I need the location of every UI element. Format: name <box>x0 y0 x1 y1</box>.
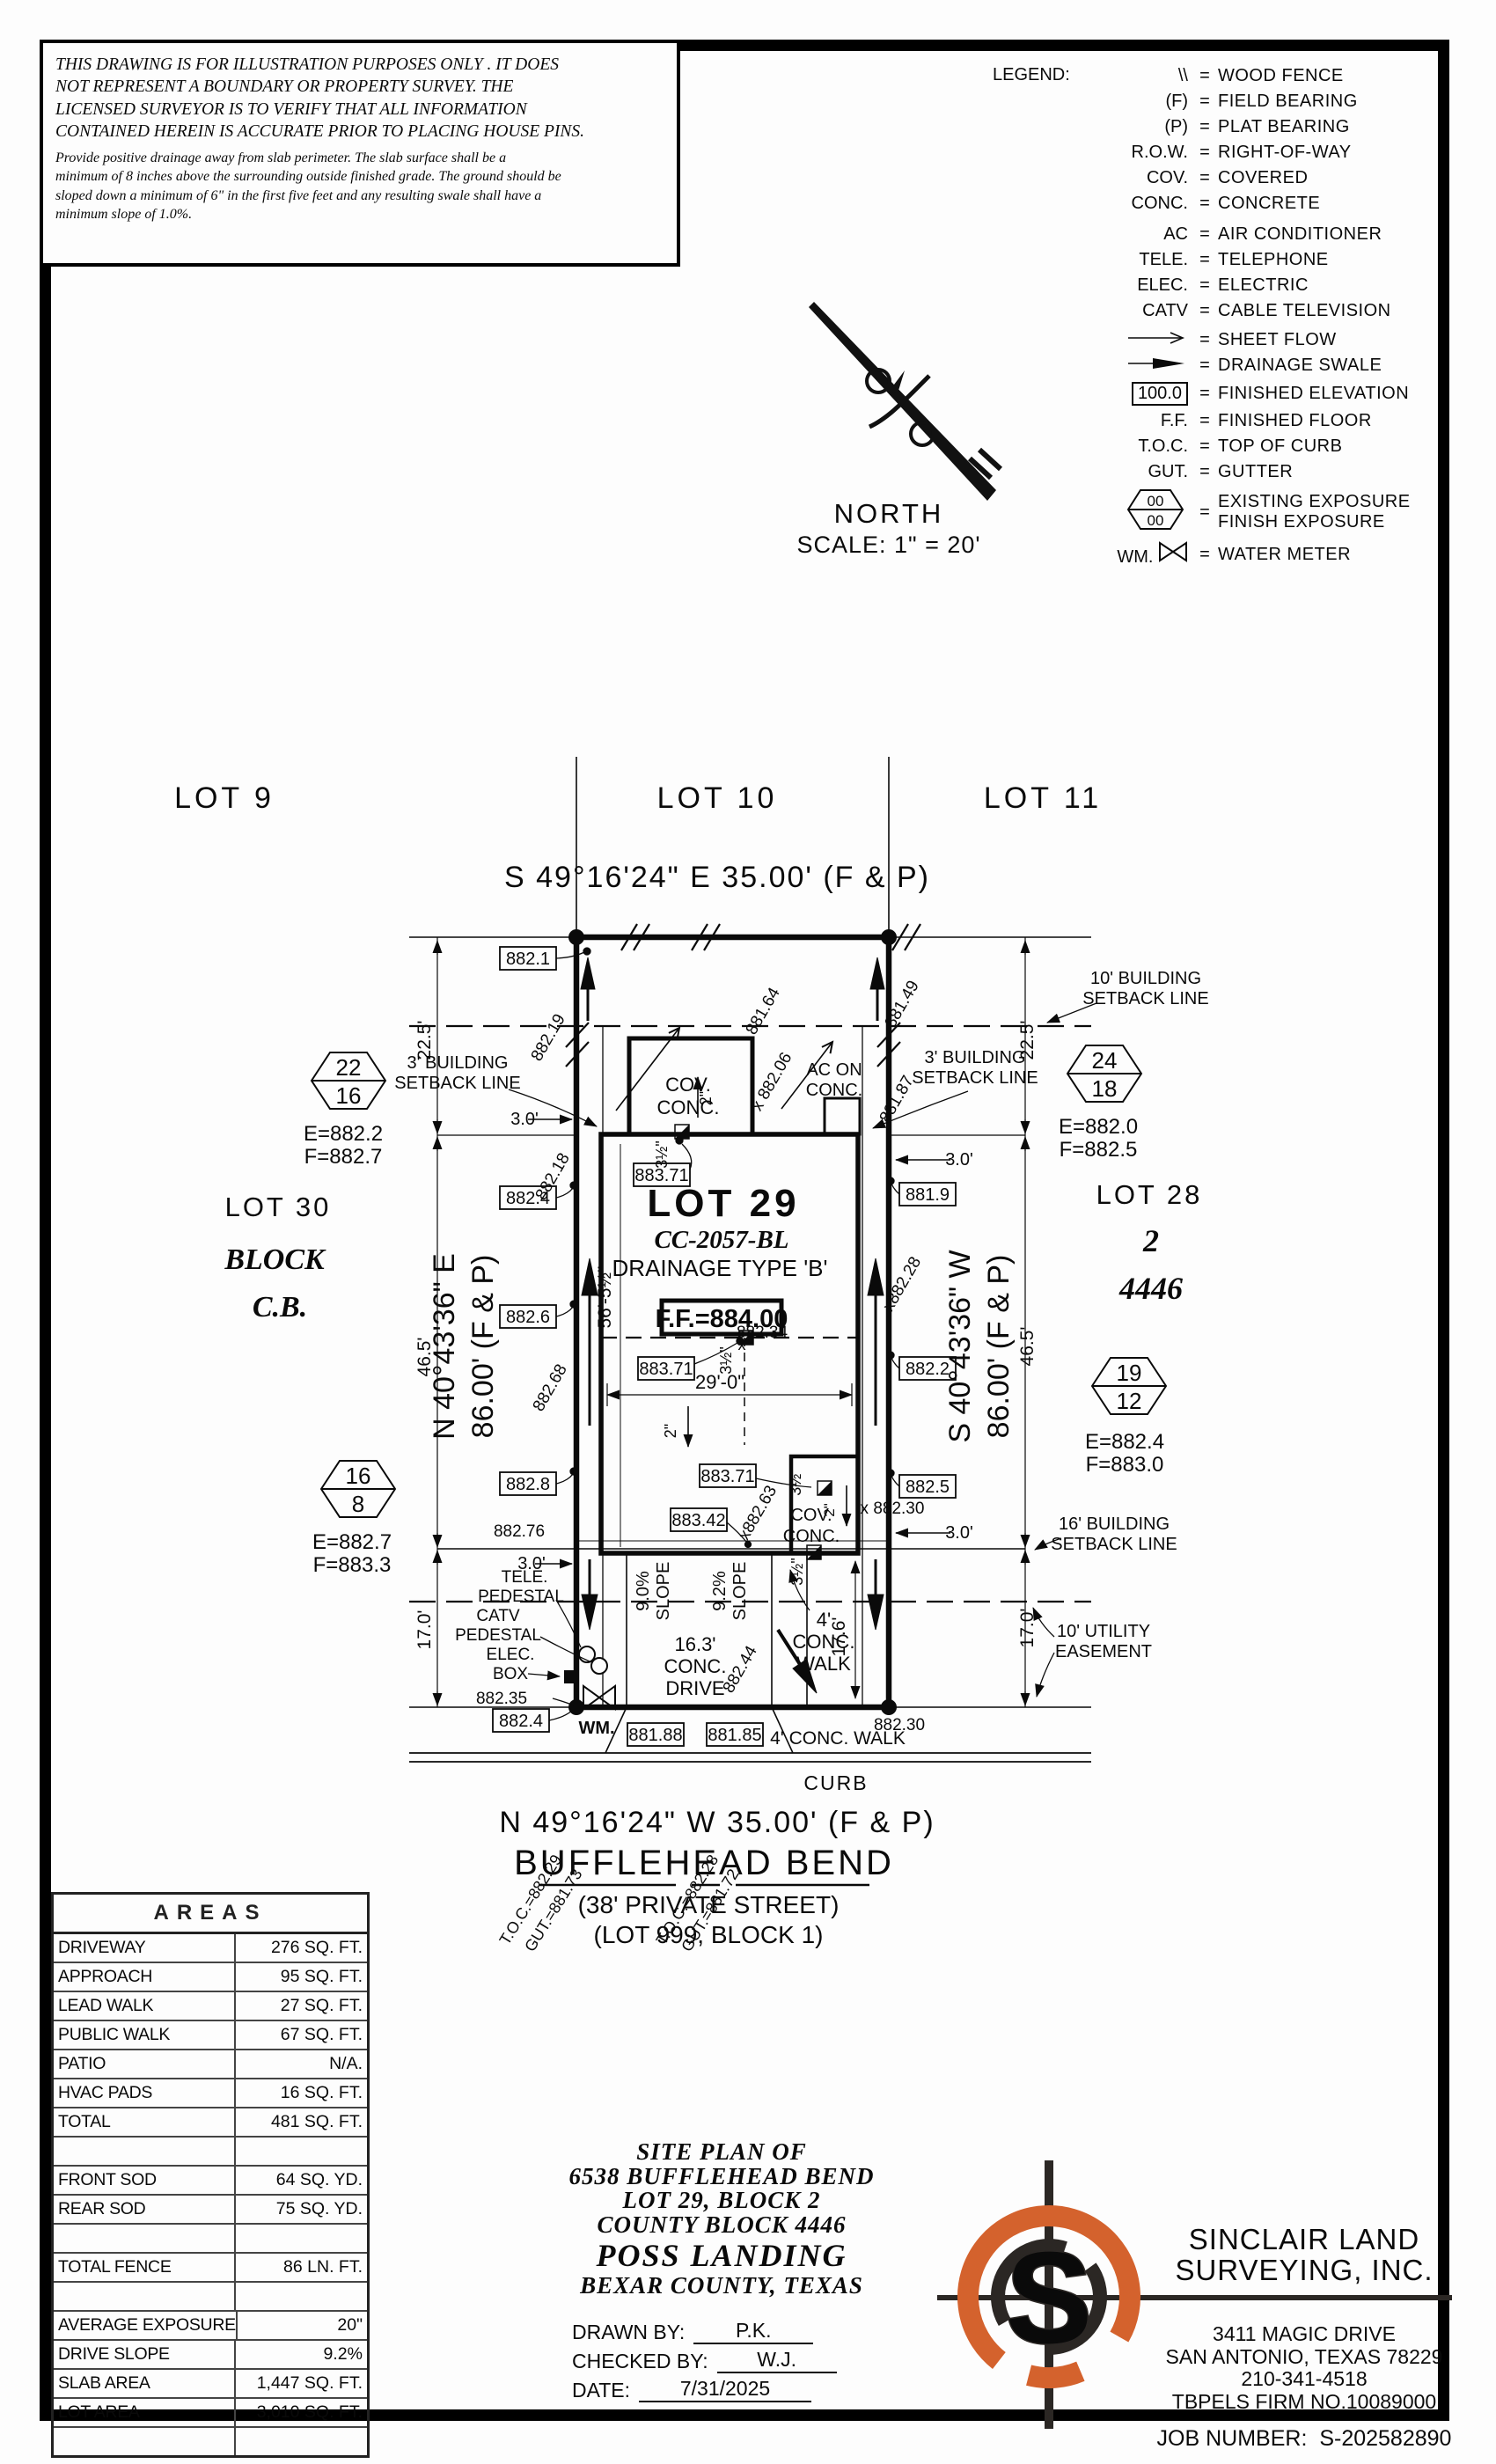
row-label: DRIVE SLOPE <box>54 2341 236 2368</box>
label-setback10-2: SETBACK LINE <box>1082 989 1208 1008</box>
title-line: 6538 BUFFLEHEAD BEND <box>475 2165 968 2189</box>
label-882-76: 882.76 <box>494 1522 545 1541</box>
label-walk-2: CONC. <box>793 1631 855 1653</box>
label-cc-number: CC-2057-BL <box>654 1226 788 1254</box>
equals: = <box>1192 275 1218 296</box>
north-arrow <box>766 286 1030 506</box>
job-number-label: JOB NUMBER: <box>1157 2426 1308 2451</box>
bearing-right-1: S 40°43'36" W <box>943 1250 977 1442</box>
label-882-5: 882.5 <box>906 1478 950 1497</box>
conc-abbr: CONC. <box>1089 194 1192 214</box>
table-row: PUBLIC WALK67 SQ. FT. <box>54 2021 367 2050</box>
utility-symbols <box>564 1646 615 1709</box>
date-value: 7/31/2025 <box>639 2377 811 2402</box>
catv-abbr: CATV <box>1089 301 1192 321</box>
note-line: Provide positive drainage away from slab… <box>55 149 664 167</box>
exposure-bottom: 00 <box>1148 512 1164 529</box>
equals: = <box>1192 224 1218 245</box>
equals: = <box>1192 462 1218 482</box>
site-plan-drawing: LOT 9 LOT 10 LOT 11 S 49°16'24" E 35.00'… <box>0 730 1496 1962</box>
legend: LEGEND: \\=WOOD FENCE (F)=FIELD BEARING … <box>1089 63 1448 569</box>
label-882-1: 882.1 <box>506 950 550 969</box>
label-2in-porch: 2" <box>697 1091 715 1105</box>
equals: = <box>1192 66 1218 86</box>
exposure-top: 00 <box>1148 493 1164 510</box>
hex24-bottom: 18 <box>1092 1075 1118 1102</box>
hex16-top: 16 <box>346 1463 371 1489</box>
label-lot10: LOT 10 <box>657 781 778 815</box>
gutter-abbr: GUT. <box>1089 462 1192 482</box>
row-value: 27 SQ. FT. <box>236 1992 367 2020</box>
table-row: PATION/A. <box>54 2050 367 2079</box>
label-x882-18: 882.18 <box>532 1150 574 1204</box>
row-value: 67 SQ. FT. <box>236 2021 367 2049</box>
label-cb: C.B. <box>253 1291 307 1324</box>
row-value: 1,447 SQ. FT. <box>236 2370 367 2397</box>
table-row-blank <box>54 2138 367 2167</box>
disclaimer-line: LICENSED SURVEYOR IS TO VERIFY THAT ALL … <box>55 99 664 121</box>
company-phone: 210-341-4518 <box>1151 2368 1457 2391</box>
logo-letter: S <box>1006 2226 1093 2371</box>
label-block: BLOCK <box>224 1243 326 1276</box>
wm-abbr: WM. <box>1117 547 1153 567</box>
label-bearing-bottom: N 49°16'24" W 35.00' (F & P) <box>499 1806 935 1839</box>
bearing-left-1: N 40°43'36" E <box>428 1253 461 1440</box>
row-label: DRIVEWAY <box>54 1934 236 1962</box>
disclaimer-line: THIS DRAWING IS FOR ILLUSTRATION PURPOSE… <box>55 54 664 76</box>
dim-17-0-right: 17.0' <box>1017 1609 1038 1648</box>
label-slope-word1: SLOPE <box>654 1562 673 1621</box>
legend-desc: ELECTRIC <box>1218 275 1448 296</box>
table-row: TOTAL481 SQ. FT. <box>54 2108 367 2138</box>
water-meter-icon: WM. <box>1089 541 1192 568</box>
legend-desc: FIELD BEARING <box>1218 92 1448 112</box>
label-slope-92: 9.2% <box>710 1571 730 1611</box>
label-tele-1: TELE. <box>502 1568 548 1587</box>
company-firm: TBPELS FIRM NO.10089000 <box>1151 2391 1457 2414</box>
row-abbr: R.O.W. <box>1089 143 1192 163</box>
row-label: SLAB AREA <box>54 2370 236 2397</box>
label-drainage-type: DRAINAGE TYPE 'B' <box>612 1255 828 1281</box>
legend-desc: TOP OF CURB <box>1218 436 1448 457</box>
dim-3-0-rt: 3.0' <box>945 1150 973 1170</box>
legend-desc: SHEET FLOW <box>1218 330 1448 350</box>
row-label: REAR SOD <box>54 2196 236 2223</box>
row-value: 16 SQ. FT. <box>236 2079 367 2107</box>
company-name-2: SURVEYING, INC. <box>1151 2255 1457 2286</box>
table-row: APPROACH95 SQ. FT. <box>54 1963 367 1992</box>
table-row: DRIVEWAY276 SQ. FT. <box>54 1934 367 1963</box>
label-2in-int: 2" <box>662 1424 679 1438</box>
table-row: REAR SOD75 SQ. YD. <box>54 2196 367 2225</box>
label-x-mark: x <box>738 1336 746 1353</box>
label-ac-2: CONC. <box>806 1081 862 1100</box>
title-block: SITE PLAN OF 6538 BUFFLEHEAD BEND LOT 29… <box>475 2140 968 2299</box>
job-number-value: S-202582890 <box>1319 2426 1451 2451</box>
signoff-block: DRAWN BY:P.K. CHECKED BY:W.J. DATE:7/31/… <box>572 2319 942 2406</box>
hex22-f: F=882.7 <box>304 1145 383 1169</box>
bearing-right-2: 86.00' (F & P) <box>982 1255 1016 1439</box>
legend-desc: WOOD FENCE <box>1218 66 1448 86</box>
table-row-blank <box>54 2428 367 2455</box>
label-catv-2: PEDESTAL <box>455 1626 541 1645</box>
label-881-88: 881.88 <box>628 1726 682 1745</box>
label-street-lot: (LOT 999, BLOCK 1) <box>594 1921 824 1948</box>
label-setback3R-2: SETBACK LINE <box>912 1068 1038 1088</box>
legend-desc: PLAT BEARING <box>1218 117 1448 137</box>
label-x882-68: 882.68 <box>530 1361 571 1415</box>
row-value: 3,010 SQ. FT. <box>236 2399 367 2426</box>
row-label: LEAD WALK <box>54 1992 236 2020</box>
site-plan-sheet: THIS DRAWING IS FOR ILLUSTRATION PURPOSE… <box>0 0 1496 2464</box>
label-881-9: 881.9 <box>906 1185 950 1205</box>
north-label: NORTH <box>788 498 990 530</box>
row-label <box>54 2225 236 2252</box>
equals: = <box>1192 143 1218 163</box>
row-value <box>236 2428 367 2455</box>
label-3half-2: 3½" <box>717 1346 735 1374</box>
label-lot11: LOT 11 <box>984 781 1102 815</box>
label-x882-06: x 882.06 <box>748 1049 796 1114</box>
label-setback3R-1: 3' BUILDING <box>925 1048 1026 1067</box>
hex19-bottom: 12 <box>1117 1388 1142 1414</box>
row-label: PATIO <box>54 2050 236 2078</box>
row-value: N/A. <box>236 2050 367 2078</box>
label-drive-1: 16.3' <box>674 1633 715 1655</box>
drawn-by-label: DRAWN BY: <box>572 2321 685 2344</box>
hex19-top: 19 <box>1117 1360 1142 1386</box>
equals: = <box>1192 301 1218 321</box>
drawn-by-value: P.K. <box>693 2319 813 2344</box>
elec-box-symbol <box>564 1670 577 1683</box>
label-3half-3: 3½" <box>787 1468 804 1495</box>
label-setback3L-2: SETBACK LINE <box>394 1074 520 1093</box>
label-882-4b: 882.4 <box>499 1712 543 1731</box>
table-row: AVERAGE EXPOSURE20" <box>54 2312 367 2341</box>
toc-abbr: T.O.C. <box>1089 436 1192 457</box>
equals: = <box>1192 117 1218 137</box>
hex24-top: 24 <box>1092 1047 1118 1074</box>
label-883-42: 883.42 <box>671 1511 725 1530</box>
date-label: DATE: <box>572 2379 630 2402</box>
row-value: 86 LN. FT. <box>236 2254 367 2281</box>
disclaimer-text: THIS DRAWING IS FOR ILLUSTRATION PURPOSE… <box>55 54 664 143</box>
label-x882-63: x882.63 <box>735 1483 781 1544</box>
row-label: FRONT SOD <box>54 2167 236 2194</box>
label-882-8: 882.8 <box>506 1475 550 1494</box>
row-label: PUBLIC WALK <box>54 2021 236 2049</box>
hex19-e: E=882.4 <box>1085 1430 1164 1454</box>
plan-labels: LOT 9 LOT 10 LOT 11 S 49°16'24" E 35.00'… <box>174 781 1209 1954</box>
legend-desc: RIGHT-OF-WAY <box>1218 143 1448 163</box>
areas-table: AREAS DRIVEWAY276 SQ. FT. APPROACH95 SQ.… <box>51 1892 370 2458</box>
label-lot28: LOT 28 <box>1096 1179 1203 1210</box>
legend-desc: COVERED <box>1218 168 1448 188</box>
drainage-swale-icon <box>1089 356 1192 376</box>
row-label: AVERAGE EXPOSURE <box>54 2312 238 2339</box>
hex22-top: 22 <box>336 1054 362 1081</box>
label-883-71c: 883.71 <box>700 1467 754 1486</box>
equals: = <box>1192 330 1218 350</box>
company-address-2: SAN ANTONIO, TEXAS 78229 <box>1151 2346 1457 2369</box>
label-ac-1: AC ON <box>806 1060 862 1080</box>
label-setback16-1: 16' BUILDING <box>1059 1514 1170 1534</box>
drainage-note: Provide positive drainage away from slab… <box>55 149 664 223</box>
finished-elevation-icon: 100.0 <box>1089 382 1192 406</box>
legend-desc: CABLE TELEVISION <box>1218 301 1448 321</box>
title-line: LOT 29, BLOCK 2 <box>475 2189 968 2213</box>
field-bearing-abbr: (F) <box>1089 92 1192 112</box>
ac-abbr: AC <box>1089 224 1192 245</box>
label-slope-word2: SLOPE <box>730 1562 750 1621</box>
label-lot9: LOT 9 <box>174 781 275 815</box>
title-line: COUNTY BLOCK 4446 <box>475 2213 968 2238</box>
label-catv-1: CATV <box>476 1607 520 1625</box>
hex16-bottom: 8 <box>352 1491 364 1517</box>
equals: = <box>1192 356 1218 376</box>
row-value <box>236 2225 367 2252</box>
legend-desc: CONCRETE <box>1218 194 1448 214</box>
label-882-6: 882.6 <box>506 1308 550 1327</box>
equals: = <box>1192 502 1218 523</box>
row-label <box>54 2138 236 2165</box>
elec-abbr: ELEC. <box>1089 275 1192 296</box>
equals: = <box>1192 168 1218 188</box>
label-setback3L-1: 3' BUILDING <box>407 1053 509 1073</box>
legend-desc: DRAINAGE SWALE <box>1218 356 1448 376</box>
table-row: FRONT SOD64 SQ. YD. <box>54 2167 367 2196</box>
table-row: LEAD WALK27 SQ. FT. <box>54 1992 367 2021</box>
label-lot29: LOT 29 <box>647 1182 799 1225</box>
areas-title: AREAS <box>54 1895 367 1934</box>
label-elec-1: ELEC. <box>487 1646 535 1664</box>
label-easement-2: EASEMENT <box>1055 1642 1152 1661</box>
hex16-f: F=883.3 <box>313 1553 392 1577</box>
checked-by-label: CHECKED BY: <box>572 2350 708 2373</box>
label-block2: 2 <box>1142 1223 1159 1258</box>
label-easement-1: 10' UTILITY <box>1057 1622 1150 1641</box>
equals: = <box>1192 545 1218 565</box>
label-tele-2: PEDESTAL <box>478 1588 564 1606</box>
wood-fence-icon: \\ <box>1089 66 1192 86</box>
plat-bearing-abbr: (P) <box>1089 117 1192 137</box>
row-value: 20" <box>238 2312 367 2339</box>
table-row: HVAC PADS16 SQ. FT. <box>54 2079 367 2108</box>
checked-by-value: W.J. <box>717 2348 837 2373</box>
label-drive-2: CONC. <box>664 1655 727 1677</box>
bearing-left-2: 86.00' (F & P) <box>466 1255 500 1439</box>
row-label: LOT AREA <box>54 2399 236 2426</box>
row-value <box>236 2138 367 2165</box>
label-ff: F.F.=884.00 <box>656 1305 788 1333</box>
equals: = <box>1192 411 1218 431</box>
label-walk-3: WALK <box>796 1653 851 1675</box>
legend-title: LEGEND: <box>993 65 1070 85</box>
company-info: SINCLAIR LAND SURVEYING, INC. 3411 MAGIC… <box>1151 2225 1457 2452</box>
label-2in-rear: 2" <box>821 1503 838 1517</box>
legend-desc: WATER METER <box>1218 545 1448 565</box>
hex19-f: F=883.0 <box>1086 1453 1164 1477</box>
label-slope-90: 9.0% <box>634 1571 653 1611</box>
legend-desc: TELEPHONE <box>1218 250 1448 270</box>
table-row: SLAB AREA1,447 SQ. FT. <box>54 2370 367 2399</box>
label-street-name: BUFFLEHEAD BEND <box>514 1844 894 1882</box>
tele-abbr: TELE. <box>1089 250 1192 270</box>
sheet-flow-icon <box>1089 330 1192 350</box>
legend-desc: EXISTING EXPOSUREFINISH EXPOSURE <box>1218 492 1448 532</box>
row-label: TOTAL FENCE <box>54 2254 236 2281</box>
row-value: 75 SQ. YD. <box>236 2196 367 2223</box>
label-setback10-1: 10' BUILDING <box>1090 969 1201 988</box>
legend-desc: GUTTER <box>1218 462 1448 482</box>
hex24-e: E=882.0 <box>1059 1115 1138 1139</box>
disclaimer-box: THIS DRAWING IS FOR ILLUSTRATION PURPOSE… <box>40 40 680 267</box>
label-3half-1: 3½" <box>653 1140 671 1168</box>
row-value: 9.2% <box>236 2341 367 2368</box>
label-x882-30: x 882.30 <box>861 1500 925 1518</box>
row-value <box>236 2283 367 2310</box>
label-wm: WM. <box>578 1719 614 1738</box>
label-x882-19: 882.19 <box>528 1011 569 1065</box>
row-label <box>54 2283 236 2310</box>
cov-abbr: COV. <box>1089 168 1192 188</box>
legend-desc-line: FINISH EXPOSURE <box>1218 512 1448 532</box>
wood-fence-ticks <box>566 924 920 1067</box>
company-name-1: SINCLAIR LAND <box>1151 2225 1457 2255</box>
table-row-blank <box>54 2283 367 2312</box>
hex22-bottom: 16 <box>336 1082 362 1109</box>
equals: = <box>1192 384 1218 404</box>
row-label: APPROACH <box>54 1963 236 1991</box>
label-883-71b: 883.71 <box>639 1360 693 1379</box>
equals: = <box>1192 92 1218 112</box>
row-label <box>54 2428 236 2455</box>
row-value: 481 SQ. FT. <box>236 2108 367 2136</box>
dim-46-5-right: 46.5' <box>1017 1327 1038 1367</box>
row-value: 276 SQ. FT. <box>236 1934 367 1962</box>
label-881-85: 881.85 <box>708 1726 761 1745</box>
table-row: TOTAL FENCE86 LN. FT. <box>54 2254 367 2283</box>
hex16-e: E=882.7 <box>312 1530 392 1554</box>
legend-desc-line: EXISTING EXPOSURE <box>1218 492 1448 512</box>
label-drive-3: DRIVE <box>665 1677 724 1699</box>
label-lot30: LOT 30 <box>225 1192 332 1222</box>
dim-17-0-left: 17.0' <box>414 1610 435 1650</box>
ff-abbr: F.F. <box>1089 411 1192 431</box>
row-value: 95 SQ. FT. <box>236 1963 367 1991</box>
legend-desc: FINISHED FLOOR <box>1218 411 1448 431</box>
label-curb: CURB <box>803 1771 868 1794</box>
row-label: HVAC PADS <box>54 2079 236 2107</box>
dim-3-0-lt: 3.0' <box>510 1110 539 1129</box>
scale-label: SCALE: 1" = 20' <box>744 532 1034 559</box>
hex24-f: F=882.5 <box>1060 1138 1138 1162</box>
label-setback16-2: SETBACK LINE <box>1051 1535 1177 1554</box>
label-882-35: 882.35 <box>476 1690 527 1708</box>
hex22-e: E=882.2 <box>304 1122 383 1146</box>
note-line: sloped down a minimum of 6" in the first… <box>55 187 664 205</box>
legend-desc: AIR CONDITIONER <box>1218 224 1448 245</box>
subdivision-name: POSS LANDING <box>475 2237 968 2274</box>
legend-desc: FINISHED ELEVATION <box>1218 384 1448 404</box>
row-label: TOTAL <box>54 2108 236 2136</box>
table-row: DRIVE SLOPE9.2% <box>54 2341 367 2370</box>
dim-3-0-rb: 3.0' <box>945 1523 973 1543</box>
table-row: LOT AREA3,010 SQ. FT. <box>54 2399 367 2428</box>
equals: = <box>1192 194 1218 214</box>
row-value: 64 SQ. YD. <box>236 2167 367 2194</box>
exposure-hexagon-icon: 0000 <box>1089 484 1192 540</box>
company-logo: S <box>915 2156 1188 2433</box>
label-walk-1: 4' <box>817 1609 831 1631</box>
county-line: BEXAR COUNTY, TEXAS <box>475 2274 968 2299</box>
label-4446: 4446 <box>1118 1271 1183 1306</box>
label-bearing-top: S 49°16'24" E 35.00' (F & P) <box>504 861 930 894</box>
title-line: SITE PLAN OF <box>475 2140 968 2165</box>
label-3half-4: 3½" <box>788 1558 806 1585</box>
table-row-blank <box>54 2225 367 2254</box>
label-conc-rear: CONC. <box>783 1527 840 1546</box>
label-street-type: (38' PRIVATE STREET) <box>578 1891 840 1918</box>
note-line: minimum of 8 inches above the surroundin… <box>55 167 664 186</box>
disclaimer-line: CONTAINED HEREIN IS ACCURATE PRIOR TO PL… <box>55 121 664 143</box>
disclaimer-line: NOT REPRESENT A BOUNDARY OR PROPERTY SUR… <box>55 76 664 98</box>
company-address-1: 3411 MAGIC DRIVE <box>1151 2323 1457 2346</box>
elevation-box: 100.0 <box>1132 382 1188 406</box>
label-elec-2: BOX <box>493 1665 528 1683</box>
equals: = <box>1192 250 1218 270</box>
equals: = <box>1192 436 1218 457</box>
label-x881-64: 881.64 <box>743 984 784 1038</box>
note-line: minimum slope of 1.0%. <box>55 205 664 224</box>
label-conc-walk-bottom: 4' CONC. WALK <box>770 1728 906 1749</box>
